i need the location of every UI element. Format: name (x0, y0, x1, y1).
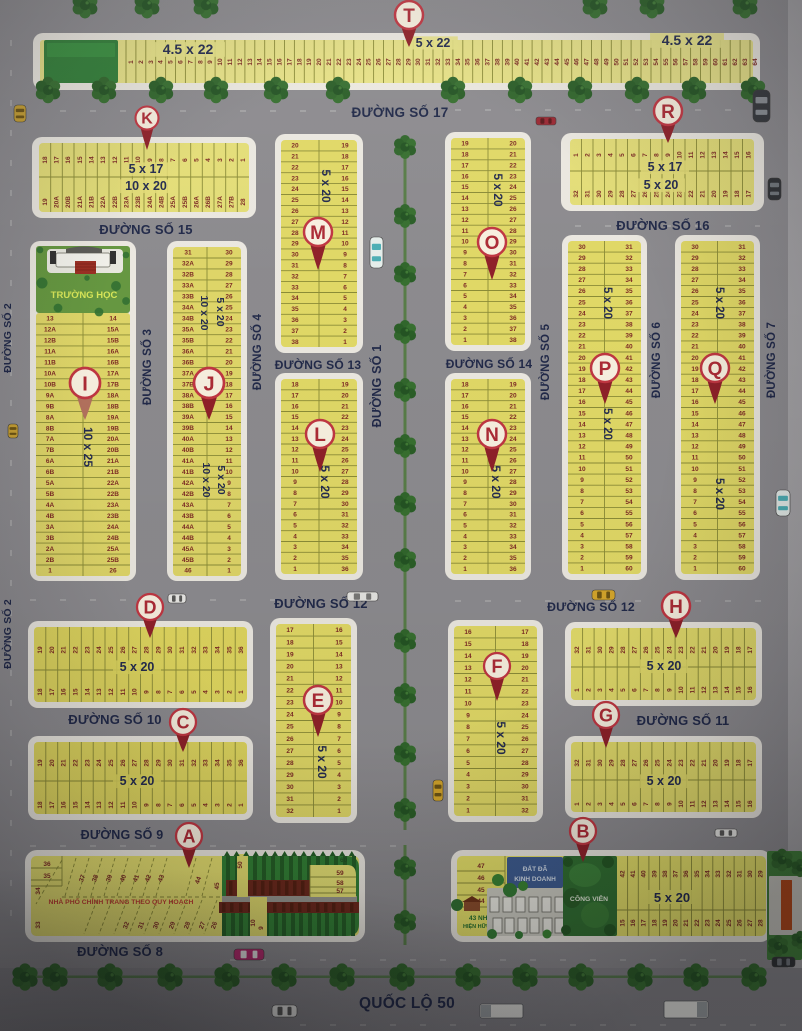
svg-text:3: 3 (693, 543, 697, 550)
svg-text:21: 21 (699, 190, 706, 198)
svg-text:55: 55 (625, 510, 633, 517)
svg-text:7A: 7A (46, 436, 55, 443)
svg-text:23: 23 (509, 173, 517, 180)
svg-text:10: 10 (335, 700, 343, 707)
svg-text:16: 16 (747, 800, 754, 808)
svg-text:3A: 3A (46, 524, 55, 531)
svg-text:21: 21 (341, 403, 349, 410)
svg-text:36: 36 (509, 566, 517, 573)
svg-text:5: 5 (191, 690, 198, 694)
svg-text:31: 31 (585, 759, 592, 767)
svg-text:22: 22 (291, 164, 299, 171)
svg-text:QUỐC LỘ 50: QUỐC LỘ 50 (359, 994, 455, 1012)
svg-text:5 x 20: 5 x 20 (120, 660, 155, 674)
svg-text:29: 29 (578, 255, 586, 262)
svg-text:16: 16 (461, 173, 469, 180)
svg-text:18: 18 (734, 190, 741, 198)
svg-text:28: 28 (143, 759, 150, 767)
svg-text:ĐƯỜNG SỐ 6: ĐƯỜNG SỐ 6 (649, 322, 663, 398)
svg-text:ĐƯỜNG SỐ 5: ĐƯỜNG SỐ 5 (538, 323, 552, 400)
svg-text:28: 28 (291, 230, 299, 237)
svg-text:37: 37 (509, 326, 517, 333)
svg-text:17: 17 (745, 190, 752, 198)
svg-text:5 x 17: 5 x 17 (129, 162, 164, 176)
svg-text:3: 3 (343, 317, 347, 324)
svg-text:5: 5 (466, 760, 470, 767)
svg-text:37: 37 (291, 328, 299, 335)
svg-text:41: 41 (738, 355, 746, 362)
svg-text:30: 30 (286, 784, 294, 791)
svg-text:40: 40 (738, 344, 746, 351)
svg-text:23: 23 (678, 646, 685, 654)
svg-text:18: 18 (691, 377, 699, 384)
svg-text:47: 47 (738, 421, 746, 428)
svg-text:40: 40 (641, 870, 648, 878)
svg-text:3: 3 (293, 544, 297, 551)
svg-text:16B: 16B (107, 360, 119, 367)
svg-text:14: 14 (724, 800, 731, 808)
svg-text:59: 59 (625, 555, 633, 562)
svg-text:33: 33 (445, 58, 452, 66)
svg-text:60: 60 (340, 857, 348, 864)
svg-text:28: 28 (509, 479, 517, 486)
svg-text:45: 45 (477, 887, 485, 894)
svg-text:39: 39 (625, 333, 633, 340)
svg-text:30: 30 (596, 190, 603, 198)
svg-text:26: 26 (286, 736, 294, 743)
svg-text:17: 17 (225, 392, 233, 399)
svg-text:N: N (485, 425, 499, 446)
svg-text:45: 45 (214, 882, 221, 890)
svg-text:L: L (314, 425, 326, 446)
svg-text:50: 50 (625, 455, 633, 462)
svg-text:TRƯỜNG HỌC: TRƯỜNG HỌC (51, 289, 118, 301)
svg-text:6: 6 (337, 748, 341, 755)
svg-text:19: 19 (724, 759, 731, 767)
svg-text:28: 28 (341, 479, 349, 486)
svg-text:C: C (177, 712, 190, 732)
svg-text:11: 11 (579, 455, 586, 462)
svg-text:35: 35 (509, 555, 517, 562)
svg-text:48: 48 (593, 58, 600, 66)
svg-text:3: 3 (217, 158, 224, 162)
svg-text:H: H (669, 597, 683, 618)
svg-text:52: 52 (738, 477, 746, 484)
svg-text:5: 5 (343, 295, 347, 302)
svg-text:9: 9 (463, 250, 467, 257)
svg-text:D: D (144, 597, 157, 617)
svg-text:11: 11 (120, 801, 127, 808)
svg-text:17: 17 (341, 164, 349, 171)
svg-text:20: 20 (49, 759, 56, 767)
svg-text:5 x 20: 5 x 20 (214, 297, 226, 326)
svg-text:17: 17 (691, 388, 699, 395)
svg-text:35: 35 (509, 304, 517, 311)
svg-text:36: 36 (238, 646, 245, 654)
svg-text:7: 7 (466, 736, 470, 743)
svg-text:11: 11 (292, 457, 299, 464)
svg-text:24: 24 (291, 186, 299, 193)
svg-text:55: 55 (738, 510, 746, 517)
svg-text:26A: 26A (194, 196, 201, 208)
svg-text:15: 15 (619, 919, 626, 927)
svg-text:2: 2 (585, 688, 592, 692)
svg-text:36: 36 (738, 299, 746, 306)
svg-text:36: 36 (683, 870, 690, 878)
svg-text:G: G (599, 705, 613, 725)
svg-text:49: 49 (625, 444, 633, 451)
svg-text:21: 21 (521, 677, 529, 684)
svg-text:31: 31 (509, 512, 517, 519)
svg-text:15: 15 (77, 156, 84, 164)
svg-text:7: 7 (337, 736, 341, 743)
svg-text:4: 4 (203, 803, 210, 807)
svg-text:25: 25 (521, 724, 529, 731)
svg-text:ĐƯỜNG SỐ 11: ĐƯỜNG SỐ 11 (637, 713, 730, 728)
svg-text:51: 51 (738, 466, 746, 473)
svg-text:9: 9 (693, 477, 697, 484)
svg-text:I: I (82, 373, 88, 395)
svg-text:36B: 36B (182, 359, 194, 366)
svg-text:11: 11 (336, 688, 343, 695)
svg-text:6: 6 (580, 510, 584, 517)
svg-text:33: 33 (203, 646, 210, 654)
svg-text:27: 27 (632, 759, 639, 767)
svg-text:5: 5 (693, 521, 697, 528)
svg-text:33: 33 (35, 921, 42, 929)
svg-text:8: 8 (197, 60, 204, 64)
svg-text:19: 19 (341, 143, 349, 150)
svg-text:1: 1 (466, 807, 470, 814)
svg-text:P: P (599, 359, 612, 380)
svg-text:24: 24 (356, 58, 363, 66)
svg-text:31: 31 (184, 250, 192, 257)
svg-text:8: 8 (693, 488, 697, 495)
svg-text:6: 6 (179, 803, 186, 807)
svg-text:19: 19 (461, 141, 469, 148)
svg-text:29: 29 (607, 190, 614, 198)
svg-text:48: 48 (738, 432, 746, 439)
svg-text:23: 23 (84, 646, 91, 654)
svg-text:6: 6 (293, 512, 297, 519)
svg-text:18: 18 (37, 688, 44, 696)
svg-text:56: 56 (738, 521, 746, 528)
svg-text:28: 28 (395, 58, 402, 66)
svg-text:35: 35 (738, 288, 746, 295)
svg-text:1: 1 (48, 568, 52, 575)
svg-text:28: 28 (225, 272, 233, 279)
svg-text:5B: 5B (46, 491, 55, 498)
svg-text:32: 32 (574, 759, 581, 767)
svg-text:ĐƯỜNG SỐ 14: ĐƯỜNG SỐ 14 (446, 356, 533, 371)
svg-text:21: 21 (509, 403, 517, 410)
svg-text:29: 29 (608, 759, 615, 767)
svg-text:26: 26 (521, 736, 529, 743)
svg-text:19A: 19A (107, 414, 119, 421)
svg-text:45B: 45B (182, 557, 194, 564)
svg-text:17: 17 (641, 919, 648, 927)
svg-text:23: 23 (84, 759, 91, 767)
svg-text:15A: 15A (107, 327, 119, 334)
svg-text:55: 55 (663, 58, 670, 66)
svg-text:13: 13 (96, 801, 103, 809)
svg-text:32: 32 (574, 646, 581, 654)
svg-text:15: 15 (335, 639, 343, 646)
svg-text:K: K (141, 111, 153, 128)
svg-text:39A: 39A (182, 414, 194, 421)
svg-text:12: 12 (701, 800, 708, 808)
svg-text:14: 14 (335, 651, 343, 658)
svg-text:53: 53 (738, 488, 746, 495)
svg-text:1: 1 (240, 158, 247, 162)
svg-text:25: 25 (108, 646, 115, 654)
svg-text:11: 11 (692, 455, 699, 462)
svg-text:34: 34 (455, 58, 462, 66)
svg-text:6: 6 (632, 802, 639, 806)
svg-text:13: 13 (578, 432, 586, 439)
svg-text:50: 50 (738, 455, 746, 462)
svg-text:50: 50 (613, 58, 620, 66)
svg-text:47: 47 (584, 58, 591, 66)
svg-text:16: 16 (578, 399, 586, 406)
svg-text:11: 11 (226, 458, 233, 465)
svg-text:5: 5 (620, 688, 627, 692)
svg-text:37A: 37A (182, 370, 194, 377)
svg-text:1: 1 (238, 803, 245, 807)
svg-text:27B: 27B (229, 196, 236, 208)
svg-text:20: 20 (673, 919, 680, 927)
svg-text:59: 59 (738, 555, 746, 562)
svg-text:B: B (577, 821, 590, 841)
svg-text:32: 32 (435, 58, 442, 66)
svg-text:20: 20 (521, 665, 529, 672)
svg-text:24: 24 (96, 646, 103, 654)
svg-text:ĐƯỜNG SỐ 15: ĐƯỜNG SỐ 15 (99, 222, 192, 237)
svg-text:30: 30 (691, 244, 699, 251)
svg-text:30: 30 (578, 244, 586, 251)
svg-text:19: 19 (306, 58, 313, 66)
svg-text:2: 2 (580, 555, 584, 562)
svg-text:M: M (310, 223, 326, 244)
svg-text:20: 20 (713, 646, 720, 654)
svg-text:F: F (492, 656, 503, 676)
svg-text:1: 1 (463, 337, 467, 344)
svg-text:10: 10 (578, 466, 586, 473)
svg-text:21: 21 (701, 646, 708, 654)
svg-text:22: 22 (689, 759, 696, 767)
svg-text:13: 13 (711, 151, 718, 159)
svg-text:27: 27 (578, 277, 586, 284)
svg-text:20A: 20A (54, 196, 61, 208)
svg-text:6: 6 (182, 158, 189, 162)
svg-text:24: 24 (666, 759, 673, 767)
svg-text:12: 12 (291, 447, 299, 454)
svg-text:14: 14 (291, 425, 299, 432)
svg-text:13: 13 (713, 800, 720, 808)
svg-text:5 x 20: 5 x 20 (647, 659, 682, 673)
svg-text:ĐƯỜNG SỐ 8: ĐƯỜNG SỐ 8 (77, 944, 163, 959)
svg-text:3: 3 (597, 802, 604, 806)
svg-text:29: 29 (758, 870, 765, 878)
svg-text:15: 15 (736, 800, 743, 808)
svg-text:9: 9 (293, 479, 297, 486)
svg-text:3: 3 (214, 690, 221, 694)
svg-text:25: 25 (578, 299, 586, 306)
svg-text:34: 34 (738, 277, 746, 284)
svg-text:31: 31 (738, 244, 746, 251)
svg-text:17: 17 (291, 392, 299, 399)
svg-text:20: 20 (225, 359, 233, 366)
svg-text:42: 42 (625, 366, 633, 373)
svg-text:8: 8 (343, 262, 347, 269)
svg-text:17: 17 (461, 162, 469, 169)
svg-text:34: 34 (509, 544, 517, 551)
svg-text:5 x 20: 5 x 20 (644, 178, 679, 192)
svg-text:2: 2 (584, 153, 591, 157)
svg-text:1: 1 (337, 808, 341, 815)
svg-text:8: 8 (655, 802, 662, 806)
svg-text:36: 36 (43, 861, 51, 868)
svg-text:30: 30 (341, 501, 349, 508)
svg-text:30: 30 (509, 501, 517, 508)
svg-text:25: 25 (726, 919, 733, 927)
svg-text:23A: 23A (124, 196, 131, 208)
svg-text:2: 2 (229, 158, 236, 162)
svg-text:29: 29 (509, 490, 517, 497)
svg-text:10 x 20: 10 x 20 (125, 179, 167, 193)
svg-text:1: 1 (343, 339, 347, 346)
svg-text:11: 11 (689, 800, 696, 807)
svg-text:3B: 3B (46, 535, 55, 542)
svg-text:34A: 34A (182, 305, 194, 312)
svg-text:29: 29 (341, 490, 349, 497)
svg-text:10: 10 (676, 151, 683, 159)
svg-text:32B: 32B (182, 272, 194, 279)
svg-text:12: 12 (335, 675, 343, 682)
svg-text:25: 25 (655, 759, 662, 767)
svg-text:41: 41 (524, 58, 531, 66)
svg-text:ĐƯỜNG SỐ 12: ĐƯỜNG SỐ 12 (547, 599, 635, 614)
svg-text:33A: 33A (182, 283, 194, 290)
svg-text:57: 57 (336, 888, 344, 895)
svg-text:2: 2 (226, 803, 233, 807)
svg-text:34: 34 (625, 277, 633, 284)
svg-text:9B: 9B (46, 403, 55, 410)
svg-text:5A: 5A (46, 480, 55, 487)
svg-text:4: 4 (343, 306, 347, 313)
svg-text:37: 37 (625, 310, 633, 317)
svg-text:26: 26 (120, 646, 127, 654)
svg-text:23: 23 (286, 700, 294, 707)
svg-text:31: 31 (291, 262, 299, 269)
svg-text:2B: 2B (46, 557, 55, 564)
svg-text:25B: 25B (107, 557, 119, 564)
svg-text:35B: 35B (182, 337, 194, 344)
svg-text:36: 36 (475, 58, 482, 66)
svg-text:18: 18 (651, 919, 658, 927)
svg-text:47: 47 (625, 421, 633, 428)
svg-text:38A: 38A (182, 392, 194, 399)
svg-text:13: 13 (461, 436, 469, 443)
svg-text:29: 29 (155, 759, 162, 767)
svg-text:19: 19 (286, 651, 294, 658)
svg-text:ĐƯỜNG SỐ 16: ĐƯỜNG SỐ 16 (616, 218, 709, 233)
svg-text:39: 39 (738, 333, 746, 340)
svg-text:9A: 9A (46, 392, 55, 399)
svg-text:33: 33 (625, 266, 633, 273)
svg-text:20: 20 (286, 663, 294, 670)
svg-text:42: 42 (619, 870, 626, 878)
svg-text:2: 2 (463, 326, 467, 333)
svg-text:32: 32 (286, 808, 294, 815)
svg-text:Q: Q (708, 359, 723, 380)
svg-text:31: 31 (521, 795, 529, 802)
svg-text:16: 16 (461, 403, 469, 410)
svg-text:14: 14 (89, 156, 96, 164)
svg-text:26: 26 (341, 457, 349, 464)
svg-text:24: 24 (691, 310, 699, 317)
svg-text:15: 15 (734, 151, 741, 159)
svg-text:60: 60 (625, 566, 633, 573)
svg-text:12B: 12B (44, 338, 56, 345)
svg-text:35: 35 (226, 759, 233, 767)
svg-text:3: 3 (337, 784, 341, 791)
svg-text:35: 35 (694, 870, 701, 878)
svg-text:5: 5 (619, 153, 626, 157)
svg-text:46: 46 (738, 410, 746, 417)
svg-text:14: 14 (109, 316, 117, 323)
svg-text:50: 50 (237, 861, 244, 869)
svg-text:54: 54 (653, 58, 660, 66)
svg-text:20: 20 (316, 58, 323, 66)
svg-text:25: 25 (655, 646, 662, 654)
svg-text:16: 16 (65, 156, 72, 164)
svg-text:8: 8 (466, 724, 470, 731)
svg-text:31: 31 (736, 870, 743, 878)
svg-text:12: 12 (461, 447, 469, 454)
svg-text:5: 5 (191, 803, 198, 807)
svg-text:31: 31 (585, 646, 592, 654)
svg-text:7: 7 (293, 501, 297, 508)
svg-text:20B: 20B (107, 447, 119, 454)
svg-text:38: 38 (509, 337, 517, 344)
svg-text:19: 19 (724, 646, 731, 654)
svg-text:12: 12 (108, 688, 115, 696)
svg-text:46: 46 (625, 410, 633, 417)
svg-text:29: 29 (155, 646, 162, 654)
svg-text:23: 23 (521, 700, 529, 707)
svg-text:15: 15 (736, 686, 743, 694)
svg-text:28: 28 (620, 759, 627, 767)
svg-text:18: 18 (341, 154, 349, 161)
svg-text:4: 4 (293, 533, 297, 540)
svg-text:A: A (183, 826, 196, 846)
svg-text:25: 25 (366, 58, 373, 66)
svg-text:7: 7 (227, 502, 231, 509)
svg-text:44: 44 (554, 58, 561, 66)
svg-text:18: 18 (578, 377, 586, 384)
svg-text:9: 9 (258, 926, 265, 930)
svg-text:17: 17 (578, 388, 586, 395)
svg-text:5 x 20: 5 x 20 (654, 890, 690, 905)
svg-text:4: 4 (607, 153, 614, 157)
svg-text:ĐƯỜNG SỐ 4: ĐƯỜNG SỐ 4 (250, 313, 264, 390)
svg-text:E: E (312, 691, 325, 712)
svg-text:25B: 25B (182, 196, 189, 208)
svg-text:12A: 12A (44, 327, 56, 334)
svg-text:29: 29 (405, 58, 412, 66)
svg-text:45: 45 (738, 399, 746, 406)
